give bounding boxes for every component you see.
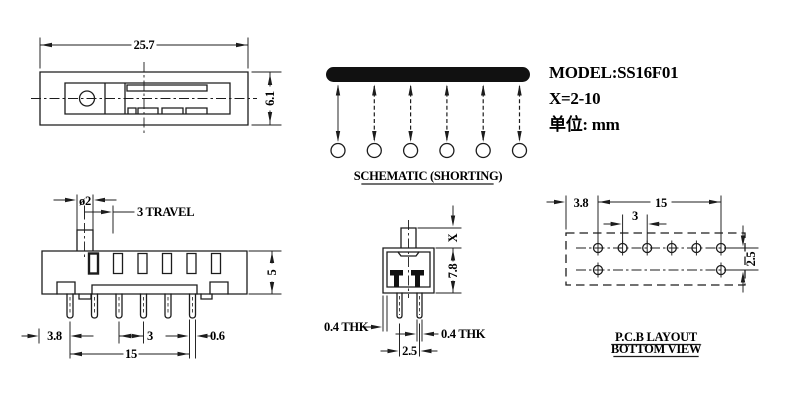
common-bus-bar [326,67,530,82]
top-view-centerlines [31,62,257,135]
arrowhead [28,334,39,338]
dim-pin-width: 0.6 [210,329,225,343]
pcb-dim-pitch: 3 [632,209,638,223]
dim-side-height: 7.8 [446,264,460,279]
schematic-view: SCHEMATIC (SHORTING) [326,67,530,184]
dim-left-offset: 3.8 [47,329,62,343]
dim-wall-thk: 0.4 THK [324,320,369,334]
arrowhead [236,43,247,47]
pcb-extension-lines [547,196,758,292]
dim-top-width: 25.7 [134,38,155,52]
dim-top-height: 6.1 [263,91,277,106]
pcb-hole-ticks [598,241,721,277]
pcb-outline [566,233,745,285]
pcb-layout-view: 3.8 15 3 2.5 P.C.B LAYOUT BOTTOM VIEW [547,196,758,357]
arrowhead [388,349,399,353]
arrowhead [599,200,610,204]
terminal-circle [367,144,381,158]
arrowhead [408,131,412,142]
top-view-extension-lines [40,38,281,125]
dim-knob-dia: ø2 [79,194,91,208]
arrowhead [71,334,82,338]
arrowhead [423,332,434,336]
arrowhead [517,131,521,142]
dim-knob-height-x: X [446,233,460,242]
arrowhead [611,222,622,226]
pcb-dim-left-offset: 3.8 [574,196,589,210]
arrowhead [405,332,416,336]
arrowhead [517,85,521,96]
arrowhead [94,198,105,202]
pcb-dim-span: 15 [655,196,667,210]
dim-pitch: 3 [147,329,153,343]
terminal-circle [440,144,454,158]
dim-body-height: 5 [265,269,279,275]
arrowhead [120,334,131,338]
arrowhead [372,85,376,96]
terminal-stem [415,275,420,287]
arrowhead [451,250,455,261]
arrowhead [132,334,143,338]
arrowhead [178,352,189,356]
title-block: MODEL:SS16F01 X=2-10 单位: mm [549,63,678,134]
arrowhead [178,334,189,338]
dim-span: 15 [125,347,137,361]
x-range-text: X=2-10 [549,89,600,108]
model-text: MODEL:SS16F01 [549,63,678,82]
arrowhead [372,131,376,142]
arrowhead [709,200,720,204]
arrowhead [648,222,659,226]
terminal-rivet [390,270,403,276]
contact-windows [114,254,221,274]
terminal-rivet [411,270,424,276]
arrowhead [481,85,485,96]
schematic-label: SCHEMATIC (SHORTING) [354,169,503,183]
arrowhead [481,131,485,142]
arrowhead [65,198,76,202]
dim-travel: 3 TRAVEL [137,205,194,219]
arrowhead [101,210,112,214]
front-view: ø2 3 TRAVEL 5 3.8 3 0.6 15 [22,194,281,361]
arrowhead [336,85,340,96]
pcb-dim-row-pitch: 2.5 [744,252,758,267]
dim-pin-pitch: 2.5 [402,344,417,358]
arrowhead [554,200,565,204]
arrowhead [268,112,272,123]
arrowhead [41,43,52,47]
dim-pin-thk: 0.4 THK [441,327,486,341]
drawing-sheet: 25.7 6.1 SCHEMATIC (SHORTING) MODEL:SS16… [0,0,800,400]
arrowhead [336,131,340,142]
arrowhead [371,325,382,329]
arrowhead [270,252,274,263]
top-view: 25.7 6.1 [31,38,281,135]
arrowhead [197,334,208,338]
terminal-circle [404,144,418,158]
arrowhead [451,281,455,292]
arrowhead [445,85,449,96]
arrowhead [445,131,449,142]
side-pins [397,293,422,318]
side-view: X 7.8 0.4 THK 0.4 THK 2.5 [324,206,486,358]
front-pins [67,294,196,318]
terminal-circle [331,144,345,158]
slider-contact-window [89,254,98,274]
front-bottom-features [57,282,228,299]
unit-text: 单位: mm [549,114,620,134]
arrowhead [71,352,82,356]
arrowhead [270,282,274,293]
terminal-circle [513,144,527,158]
terminal-stem [394,275,399,287]
terminal-circle [476,144,490,158]
arrowhead [408,85,412,96]
arrowhead [451,216,455,227]
switch-drawing: 25.7 6.1 SCHEMATIC (SHORTING) MODEL:SS16… [0,0,800,400]
arrowhead [421,349,432,353]
arrowhead [268,74,272,85]
